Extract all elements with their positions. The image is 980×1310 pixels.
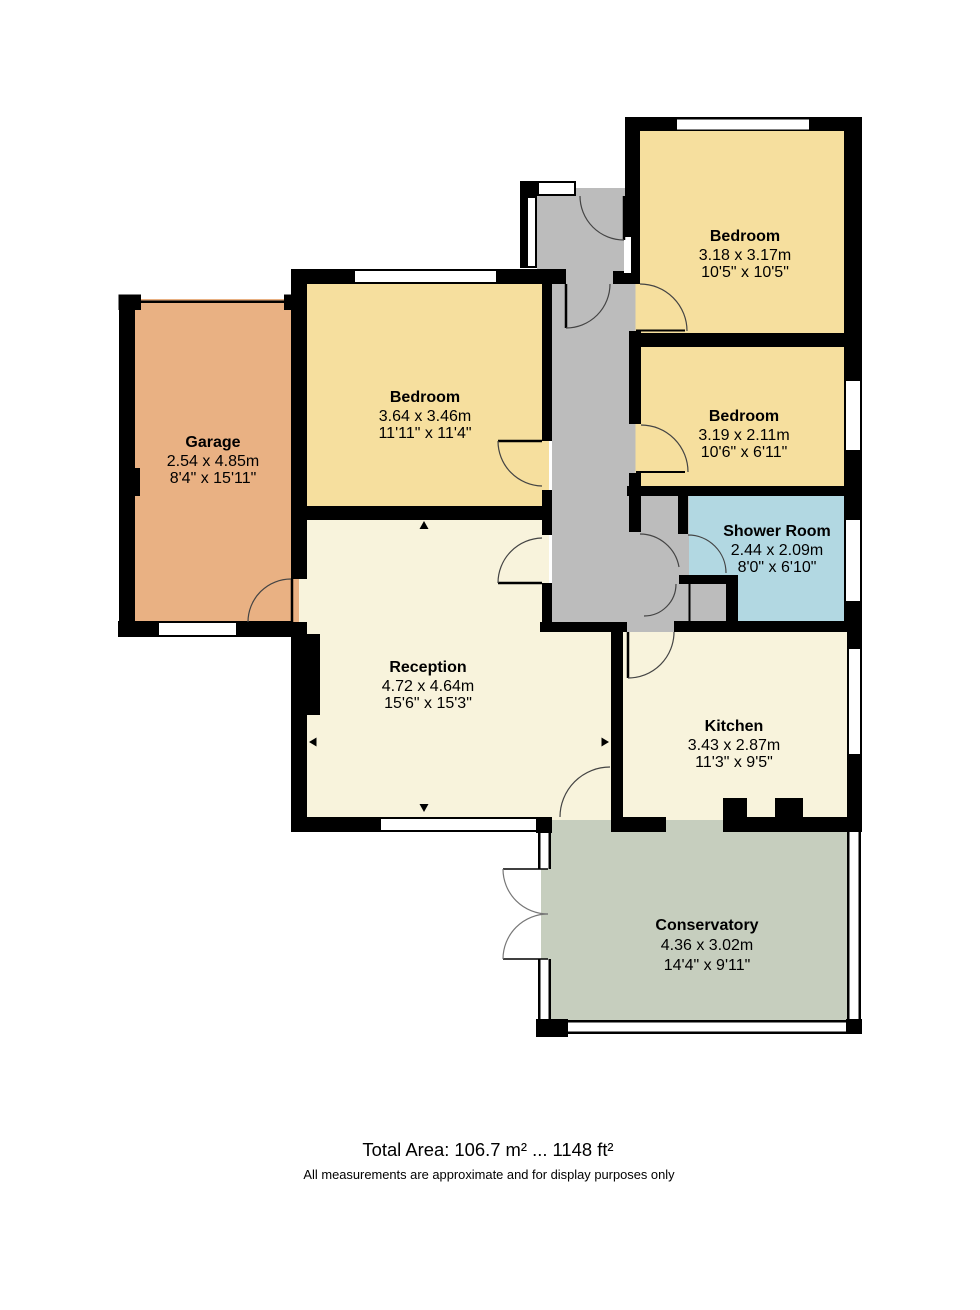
- svg-text:Bedroom: Bedroom: [709, 408, 779, 425]
- svg-text:11'11" x 11'4": 11'11" x 11'4": [378, 425, 471, 442]
- svg-text:All measurements are approxima: All measurements are approximate and for…: [303, 1167, 675, 1182]
- svg-text:3.19 x 2.11m: 3.19 x 2.11m: [698, 427, 789, 444]
- svg-text:Shower Room: Shower Room: [723, 523, 831, 540]
- svg-text:Reception: Reception: [389, 659, 466, 676]
- svg-text:Total Area: 106.7 m² ... 1148: Total Area: 106.7 m² ... 1148 ft²: [362, 1139, 613, 1160]
- svg-text:15'6" x 15'3": 15'6" x 15'3": [384, 695, 472, 712]
- svg-text:Bedroom: Bedroom: [390, 389, 460, 406]
- svg-text:Garage: Garage: [185, 434, 240, 451]
- svg-text:14'4" x 9'11": 14'4" x 9'11": [664, 957, 751, 974]
- svg-text:4.72 x 4.64m: 4.72 x 4.64m: [382, 678, 475, 695]
- svg-text:2.54 x 4.85m: 2.54 x 4.85m: [167, 453, 260, 470]
- svg-text:2.44 x 2.09m: 2.44 x 2.09m: [731, 542, 824, 559]
- svg-text:Conservatory: Conservatory: [655, 917, 758, 934]
- svg-text:10'5" x 10'5": 10'5" x 10'5": [701, 264, 789, 281]
- svg-text:8'4" x 15'11": 8'4" x 15'11": [170, 470, 257, 487]
- svg-text:Bedroom: Bedroom: [710, 228, 780, 245]
- svg-text:Kitchen: Kitchen: [705, 718, 764, 735]
- svg-text:8'0" x 6'10": 8'0" x 6'10": [738, 559, 817, 576]
- svg-text:3.43 x 2.87m: 3.43 x 2.87m: [688, 737, 781, 754]
- svg-text:10'6" x 6'11": 10'6" x 6'11": [701, 444, 788, 461]
- svg-text:4.36 x 3.02m: 4.36 x 3.02m: [661, 937, 754, 954]
- svg-text:3.18 x 3.17m: 3.18 x 3.17m: [699, 247, 792, 264]
- svg-text:11'3" x 9'5": 11'3" x 9'5": [695, 754, 773, 771]
- svg-text:3.64 x 3.46m: 3.64 x 3.46m: [379, 408, 472, 425]
